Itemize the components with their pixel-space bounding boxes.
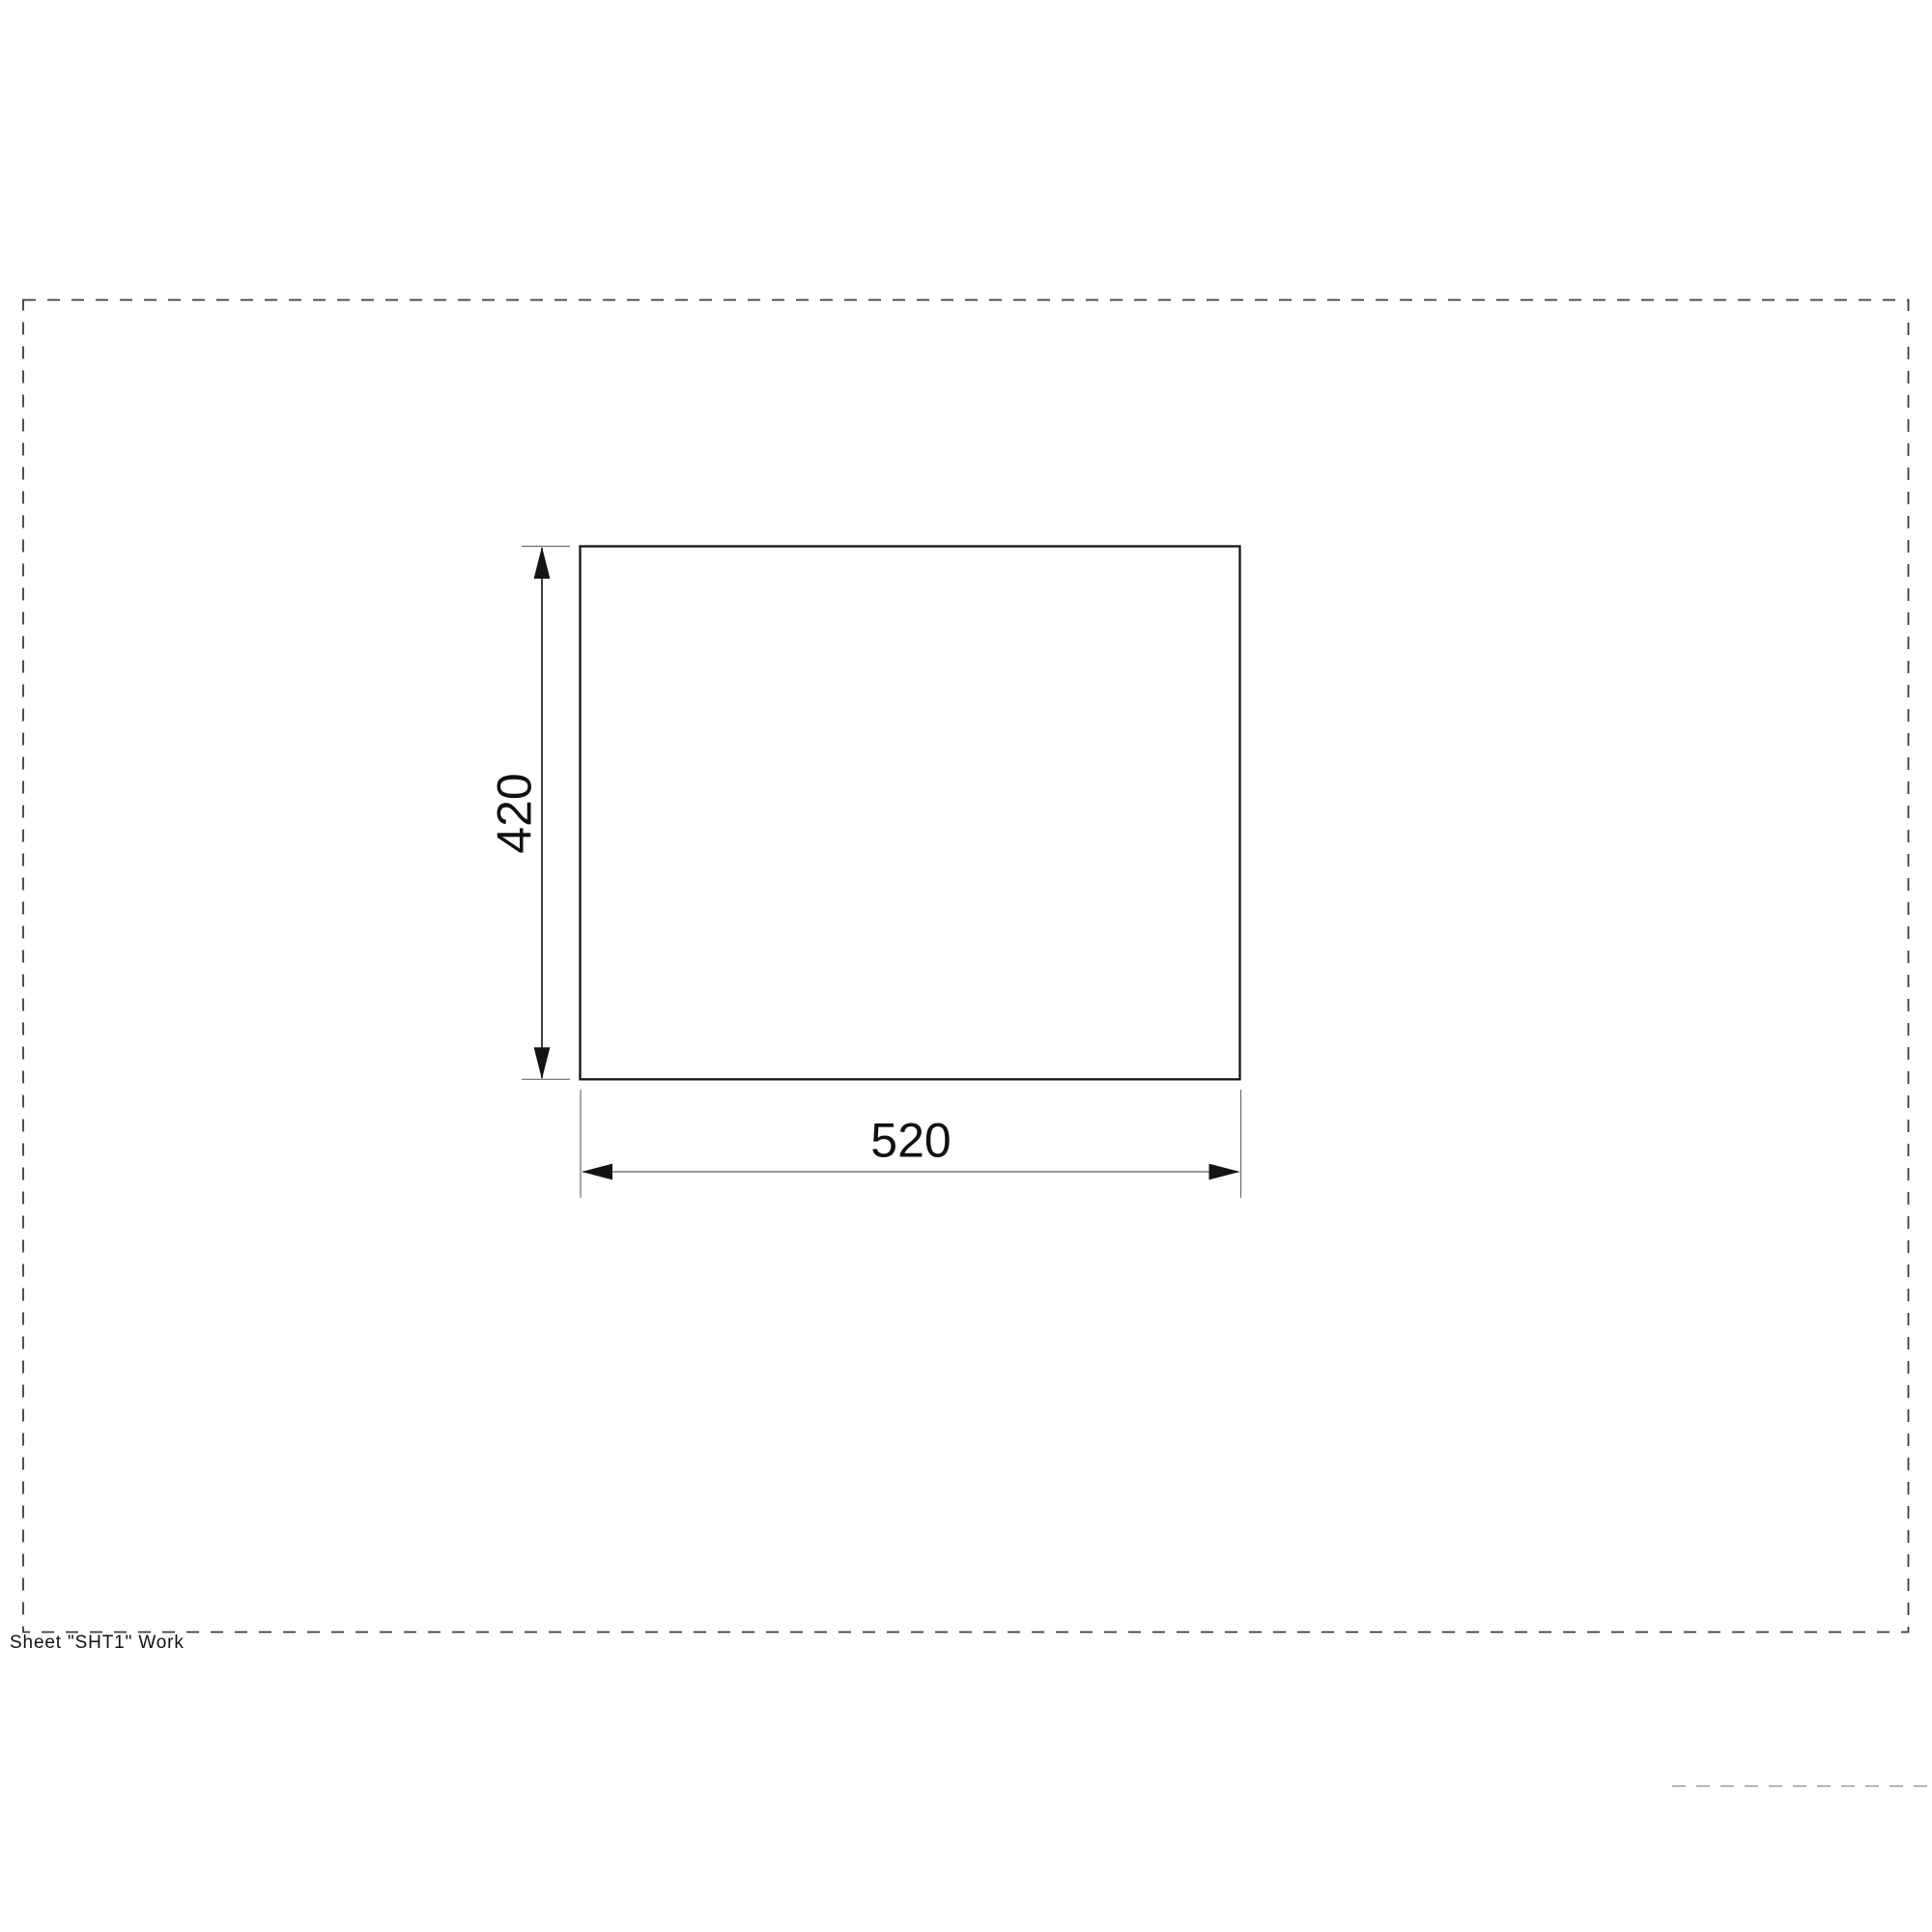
svg-text:420: 420 <box>488 773 542 853</box>
svg-text:520: 520 <box>870 1114 951 1168</box>
svg-text:Sheet "SHT1" Work: Sheet "SHT1" Work <box>10 1633 185 1653</box>
